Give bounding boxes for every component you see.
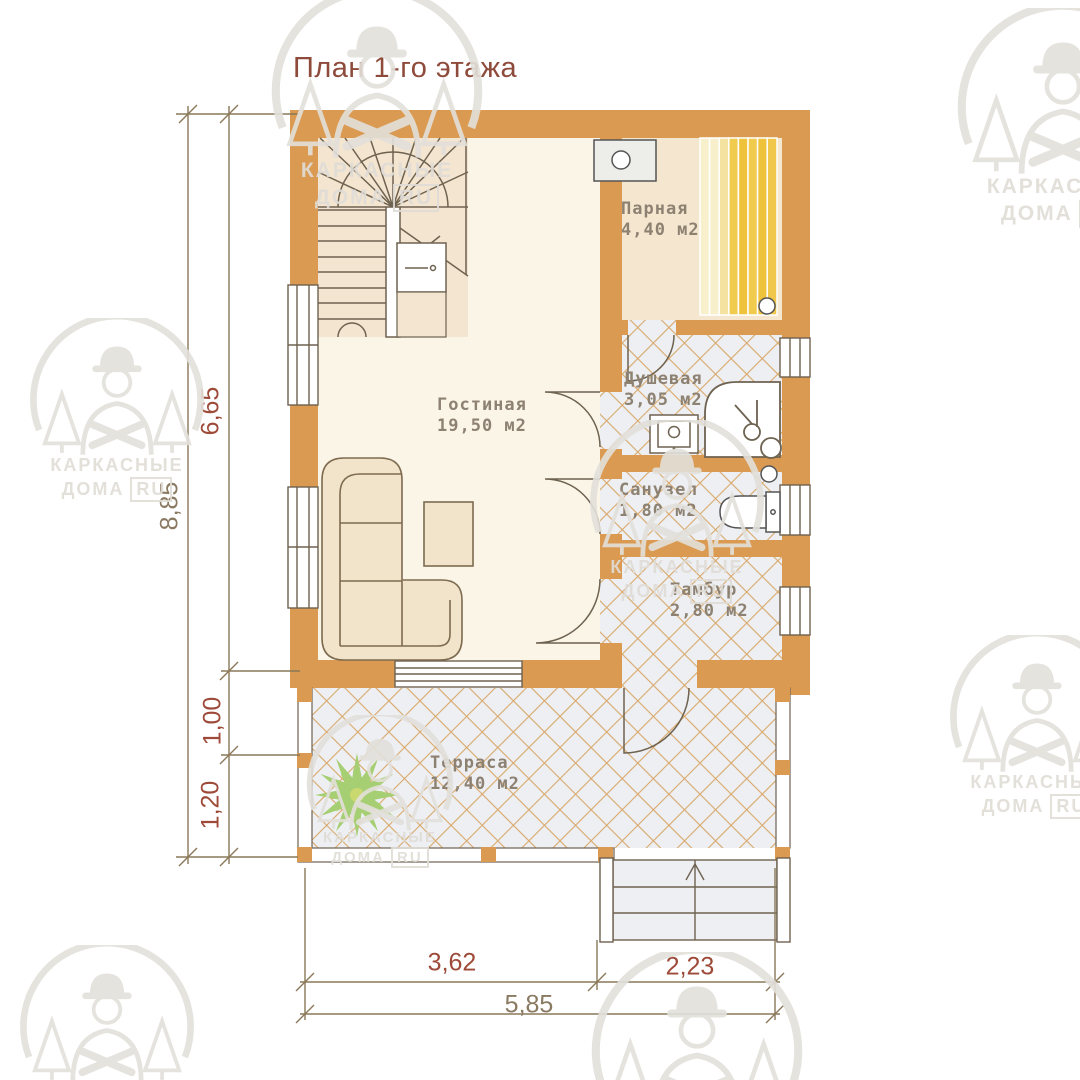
room-label-gostinaya: Гостиная 19,50 м2 [437,395,527,437]
room-area: 2,80 м2 [670,601,749,622]
floor-plan-drawing [0,0,1080,1080]
room-name: Тамбур [670,580,749,601]
room-name: Терраса [430,753,520,774]
room-name: Душевая [624,369,703,390]
washing-machine [650,415,698,453]
sauna-benches [700,138,777,315]
room-area: 4,40 м2 [621,220,700,241]
room-name: Парная [621,199,700,220]
room-label-dushevaya: Душевая 3,05 м2 [624,369,703,411]
page-title: План 1-го этажа [293,52,517,85]
coffee-table [424,502,473,566]
room-area: 19,50 м2 [437,416,527,437]
dim-bottom-segment-2: 2,23 [666,953,715,982]
dim-bottom-total: 5,85 [505,991,554,1020]
room-area: 12,40 м2 [430,774,520,795]
dim-left-segment-2: 1,00 [199,697,228,746]
sauna-stove [594,140,656,181]
entrance-steps [600,858,790,942]
dim-left-total: 8,85 [156,482,185,531]
dim-bottom-segment-1: 3,62 [428,949,477,978]
room-area: 1,80 м2 [619,501,698,522]
room-name: Санузел [619,480,698,501]
floor-plan-canvas: План 1-го этажа Парная 4,40 м2 Душевая 3… [0,0,1080,1080]
dim-left-segment-1: 6,65 [197,387,226,436]
room-label-parnaya: Парная 4,40 м2 [621,199,700,241]
shower-cabin [705,382,781,458]
room-name: Гостиная [437,395,527,416]
room-label-sanuzel: Санузел 1,80 м2 [619,480,698,522]
room-label-tambur: Тамбур 2,80 м2 [670,580,749,622]
room-area: 3,05 м2 [624,390,703,411]
room-label-terrasa: Терраса 12,40 м2 [430,753,520,795]
dim-left-segment-3: 1,20 [197,781,226,830]
